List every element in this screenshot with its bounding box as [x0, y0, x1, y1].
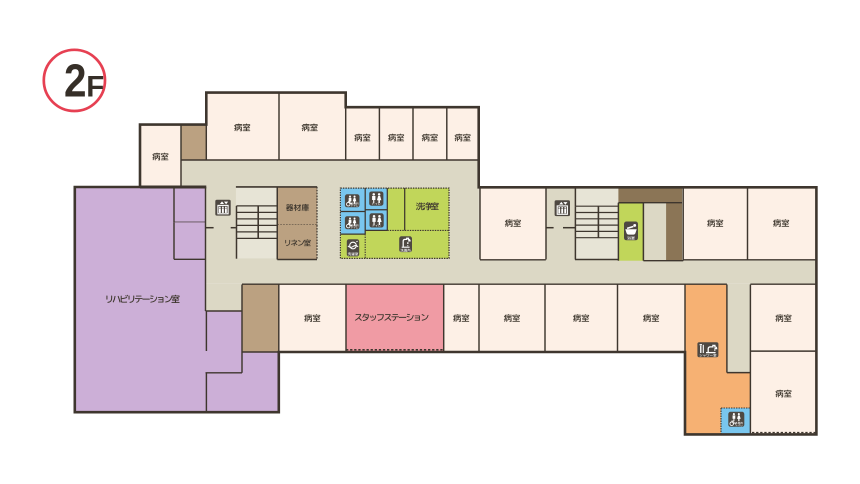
svg-text:2: 2 — [64, 55, 87, 107]
svg-text:F: F — [86, 71, 104, 104]
